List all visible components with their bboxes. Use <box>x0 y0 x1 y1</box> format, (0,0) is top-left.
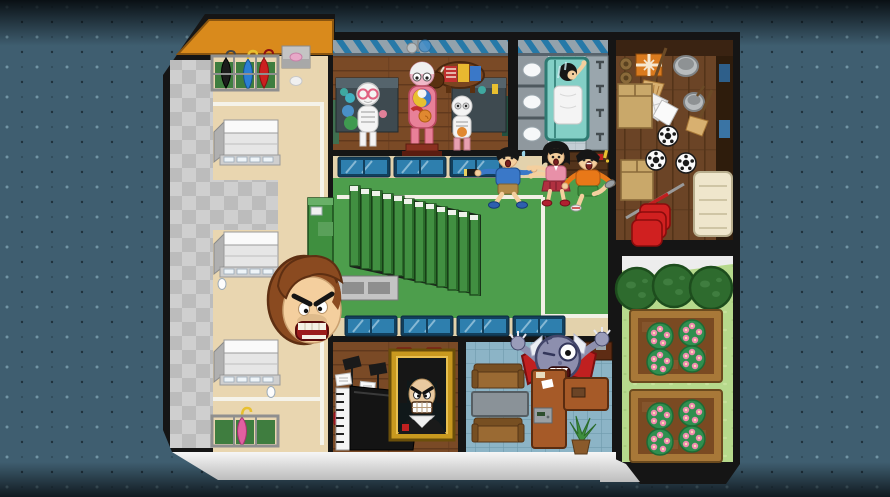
soccer-ball-3[interactable] <box>676 153 696 173</box>
wall-sign <box>311 207 322 215</box>
hall-desk-2[interactable] <box>394 157 446 177</box>
umbrella-stand-top[interactable] <box>212 50 278 90</box>
hall-desk-7[interactable] <box>513 316 565 336</box>
entrance-checker-alcove <box>213 180 278 230</box>
lost-and-found-box[interactable] <box>282 46 310 68</box>
angry-mouth <box>296 322 328 340</box>
room-storage[interactable] <box>616 40 733 246</box>
bucket-1[interactable] <box>674 56 698 76</box>
pink-item <box>290 53 302 61</box>
hall-desk-5[interactable] <box>401 316 453 336</box>
hall-desk-6[interactable] <box>457 316 509 336</box>
room-office[interactable] <box>466 327 612 454</box>
stair-landing <box>336 276 398 300</box>
shower-ghost-girl[interactable] <box>554 60 587 124</box>
giant-angry-head[interactable] <box>268 256 342 344</box>
haunted-portrait[interactable] <box>390 350 454 440</box>
shoe-cabinet-middle[interactable] <box>214 232 280 277</box>
toilets[interactable] <box>523 63 541 141</box>
portrait-ghost[interactable] <box>398 359 446 434</box>
hall-desk-1[interactable] <box>338 157 390 177</box>
shoe-cabinet-bottom[interactable] <box>214 340 280 385</box>
room-bathroom[interactable] <box>518 40 608 150</box>
office-sofa-top[interactable] <box>472 364 524 388</box>
office-sofa-bottom[interactable] <box>472 418 524 442</box>
shower-stall[interactable] <box>546 58 588 140</box>
soccer-ball-1[interactable] <box>658 126 678 146</box>
vault-mat[interactable] <box>694 172 732 236</box>
storage-back-wall <box>616 40 733 56</box>
hedge-tree-1[interactable] <box>616 268 658 310</box>
flower-bed-top[interactable] <box>630 310 722 382</box>
soccer-ball-2[interactable] <box>646 150 666 170</box>
coffee-table[interactable] <box>472 392 528 416</box>
building-bottom-bevel <box>172 452 616 480</box>
school-map-canvas <box>0 0 890 497</box>
game-screen <box>0 0 890 497</box>
room-garden[interactable] <box>616 256 733 462</box>
desk-book <box>572 388 585 397</box>
hedge-tree-2[interactable] <box>653 265 695 307</box>
desk-note <box>536 372 545 378</box>
bottle-yellow <box>492 84 498 94</box>
shoe-cabinet-top[interactable] <box>214 120 280 165</box>
white-blob[interactable] <box>290 77 302 86</box>
flower-bed-bottom[interactable] <box>630 390 722 462</box>
room-science-lab[interactable] <box>333 40 508 156</box>
safe[interactable] <box>534 408 552 423</box>
hedge-tree-3[interactable] <box>690 267 732 309</box>
room-music[interactable] <box>333 342 458 452</box>
hall-desk-4[interactable] <box>345 316 397 336</box>
entrance-checker-tiles <box>170 60 213 448</box>
